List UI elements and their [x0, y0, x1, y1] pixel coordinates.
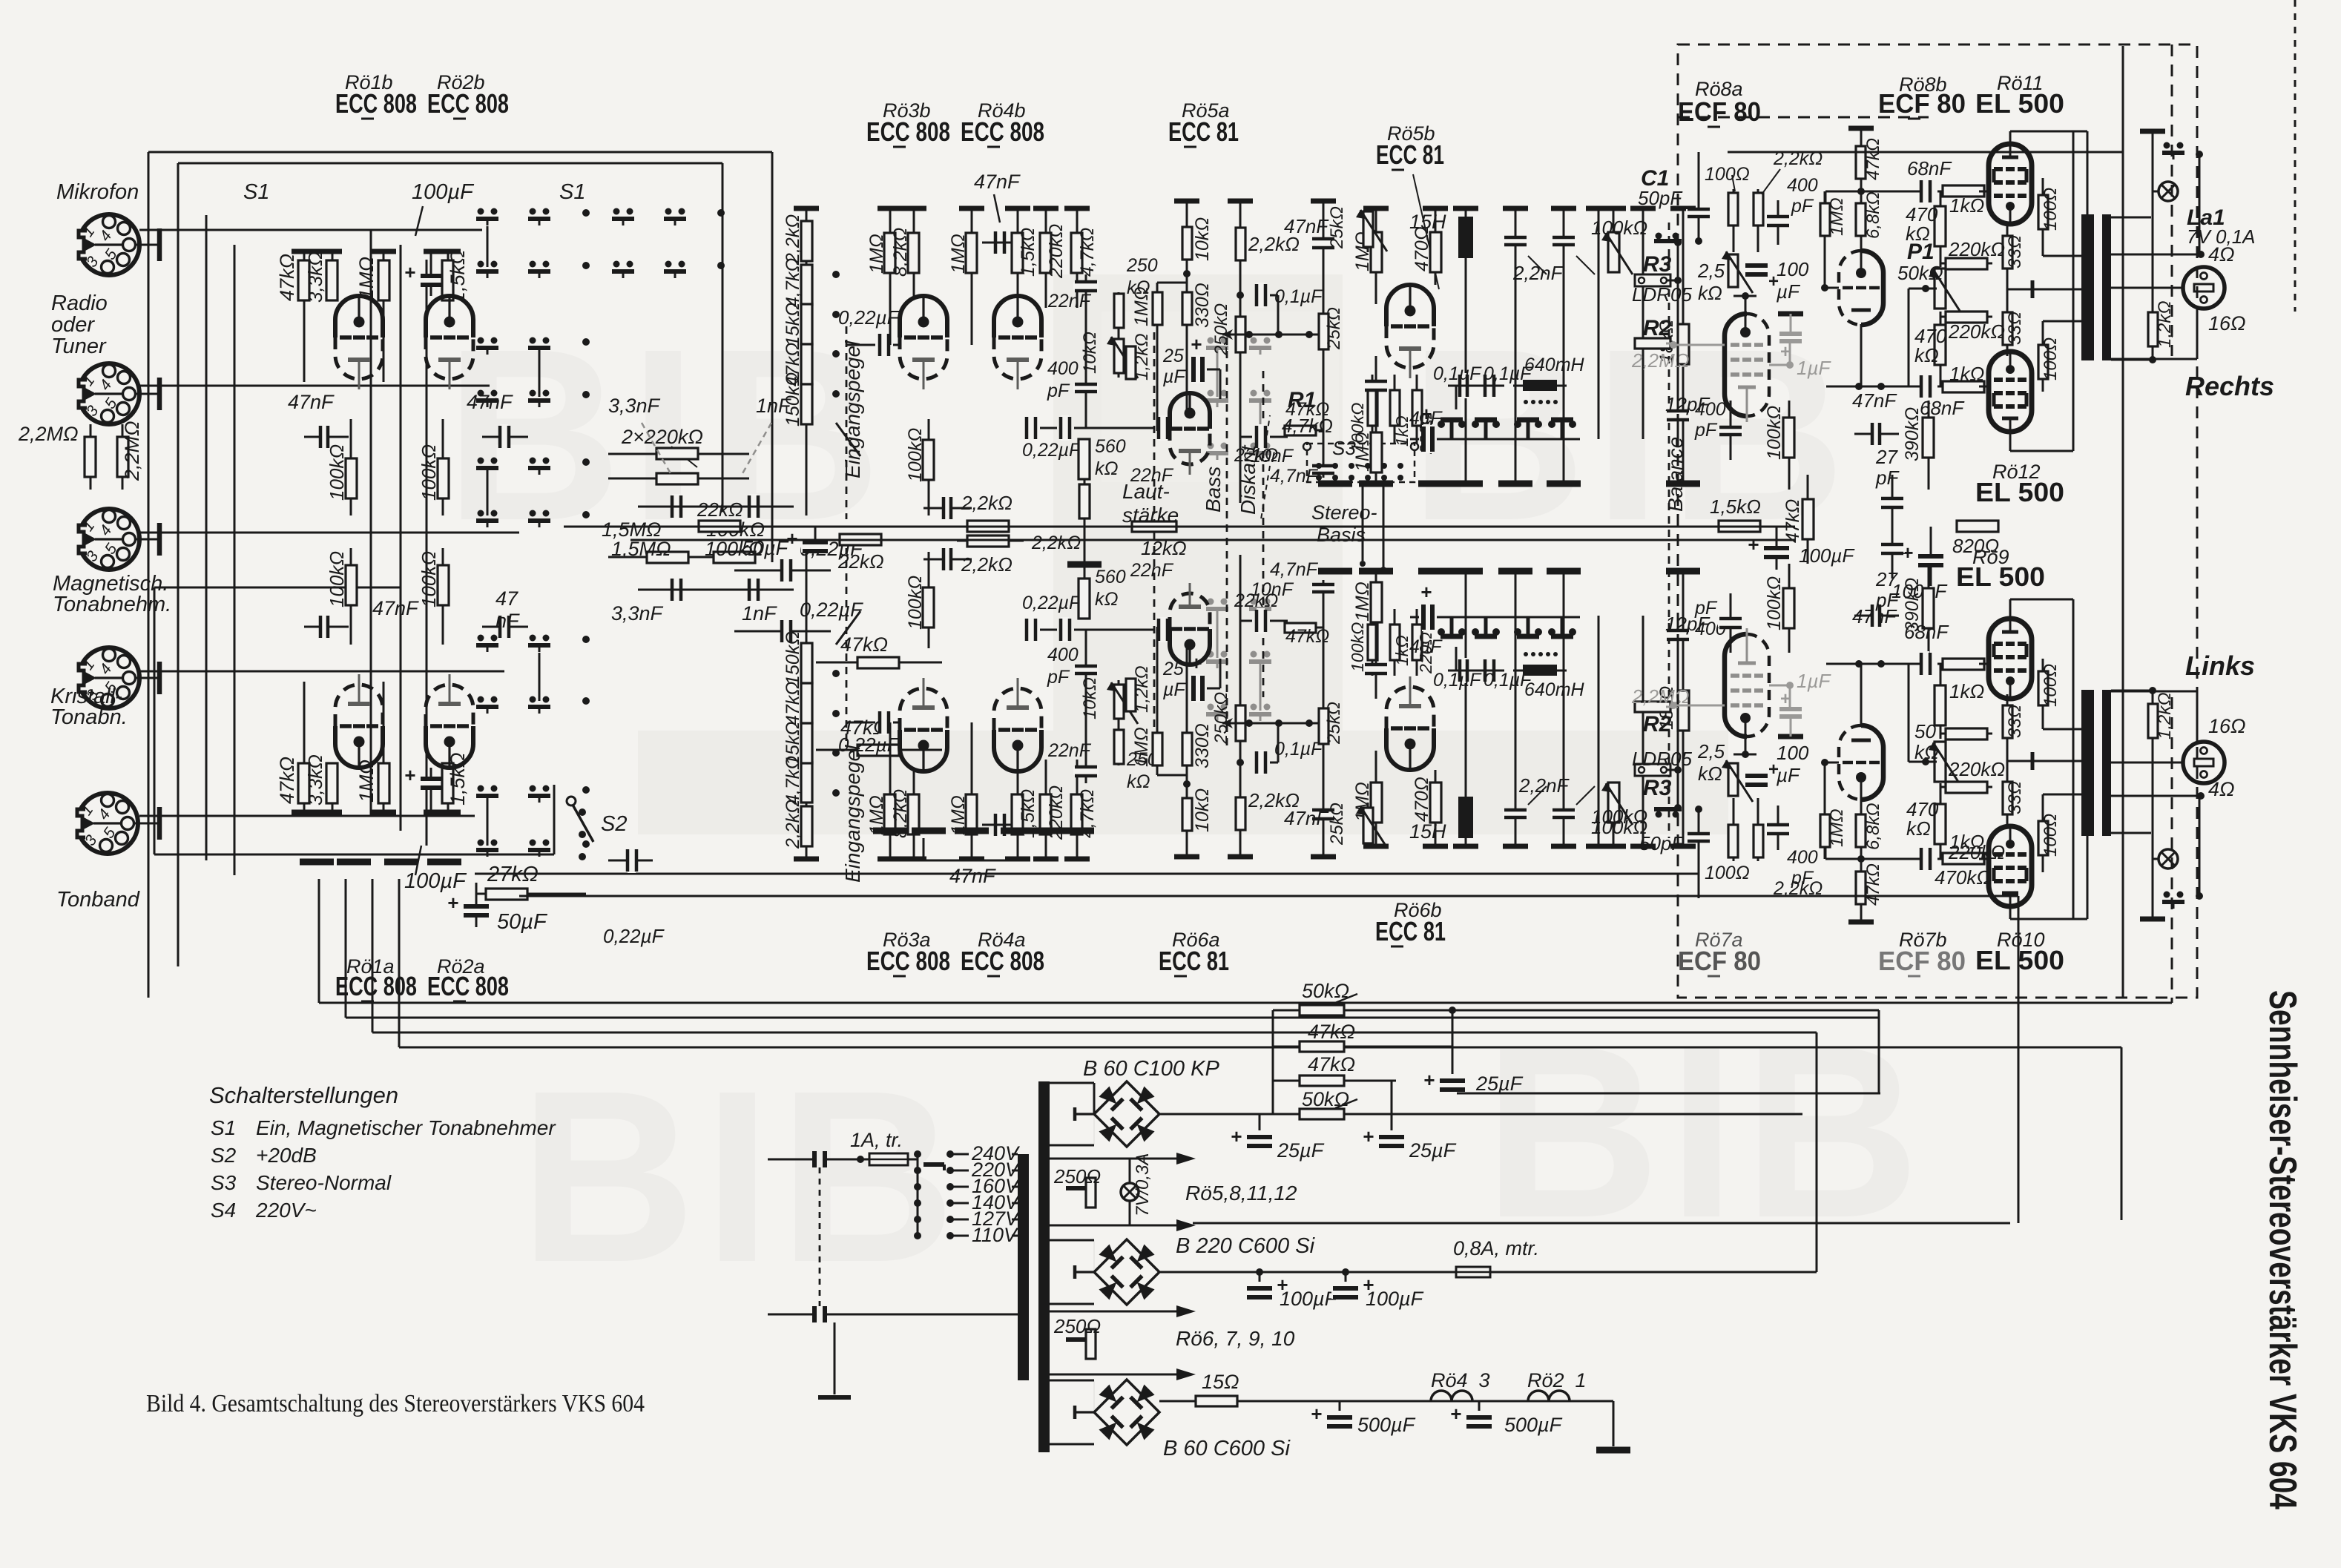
- svg-text:50kΩ: 50kΩ: [1302, 1088, 1349, 1110]
- svg-text:47kΩ: 47kΩ: [1782, 499, 1803, 543]
- svg-text:Sennheiser-Stereoverstärker VK: Sennheiser-Stereoverstärker VKS 604: [2261, 990, 2304, 1509]
- svg-text:560: 560: [1095, 436, 1126, 457]
- svg-text:kΩ: kΩ: [1095, 458, 1119, 479]
- svg-text:15kΩ: 15kΩ: [783, 722, 803, 765]
- svg-text:S2: S2: [601, 812, 627, 836]
- svg-text:400: 400: [1787, 847, 1818, 868]
- svg-text:S2: S2: [211, 1144, 237, 1167]
- svg-text:22nF: 22nF: [1130, 465, 1174, 486]
- svg-text:100kΩ: 100kΩ: [905, 576, 926, 630]
- svg-text:68nF: 68nF: [1904, 621, 1949, 643]
- svg-text:6,8kΩ: 6,8kΩ: [1863, 803, 1883, 850]
- svg-text:1MΩ: 1MΩ: [948, 234, 969, 274]
- svg-text:+: +: [1420, 581, 1432, 603]
- svg-text:25µF: 25µF: [1475, 1073, 1524, 1095]
- svg-text:ECC 808: ECC 808: [866, 946, 950, 976]
- svg-text:50kΩ: 50kΩ: [1897, 262, 1943, 284]
- svg-text:68nF: 68nF: [1920, 397, 1965, 419]
- svg-text:47kΩ: 47kΩ: [1308, 1053, 1355, 1075]
- svg-text:pF: pF: [1791, 868, 1814, 889]
- svg-text:4,7kΩ: 4,7kΩ: [783, 258, 803, 307]
- svg-text:S1: S1: [559, 180, 585, 204]
- svg-text:50: 50: [1914, 720, 1936, 742]
- svg-text:Stereo-Normal: Stereo-Normal: [256, 1171, 392, 1194]
- svg-text:+: +: [1450, 1403, 1461, 1425]
- svg-text:EL 500: EL 500: [1975, 477, 2064, 507]
- svg-text:oder: oder: [51, 313, 95, 337]
- svg-text:+: +: [404, 764, 415, 786]
- svg-text:100kΩ: 100kΩ: [326, 551, 348, 607]
- svg-text:33Ω: 33Ω: [2005, 781, 2025, 814]
- svg-text:150kΩ: 150kΩ: [783, 372, 803, 426]
- svg-text:EL 500: EL 500: [1956, 561, 2045, 592]
- svg-text:0,1µF: 0,1µF: [1433, 670, 1482, 691]
- svg-text:2,2kΩ: 2,2kΩ: [961, 492, 1013, 514]
- svg-text:47nF: 47nF: [467, 391, 513, 413]
- svg-text:33Ω: 33Ω: [2005, 312, 2025, 345]
- svg-text:0,22µF: 0,22µF: [800, 599, 863, 621]
- svg-text:12pF: 12pF: [1665, 393, 1711, 415]
- svg-text:33Ω: 33Ω: [2005, 705, 2025, 738]
- svg-text:6,8kΩ: 6,8kΩ: [1863, 191, 1883, 239]
- svg-text:ECC 808: ECC 808: [866, 116, 950, 147]
- svg-text:kΩ: kΩ: [1914, 344, 1939, 366]
- svg-text:15H: 15H: [1409, 820, 1446, 843]
- svg-text:15kΩ: 15kΩ: [783, 303, 803, 346]
- svg-text:Eingangspegel: Eingangspegel: [841, 745, 864, 883]
- svg-text:1kΩ: 1kΩ: [1949, 363, 1984, 385]
- svg-text:2,5: 2,5: [1697, 740, 1725, 762]
- svg-text:Stereo-: Stereo-: [1311, 501, 1377, 524]
- svg-text:ECC 808: ECC 808: [961, 116, 1044, 147]
- svg-text:22kΩ: 22kΩ: [1234, 590, 1278, 611]
- svg-text:EL 500: EL 500: [1975, 945, 2064, 975]
- svg-text:S1: S1: [243, 180, 269, 204]
- svg-text:22nF: 22nF: [1130, 560, 1174, 581]
- svg-text:100µF: 100µF: [412, 180, 475, 204]
- svg-text:kΩ: kΩ: [1914, 741, 1939, 763]
- svg-text:4,7kΩ: 4,7kΩ: [1077, 228, 1098, 277]
- svg-text:1MΩ: 1MΩ: [1131, 286, 1152, 326]
- svg-text:100kΩ: 100kΩ: [1591, 217, 1647, 239]
- svg-text:P1: P1: [1907, 240, 1935, 264]
- svg-text:+: +: [1191, 333, 1202, 355]
- svg-text:1,5kΩ: 1,5kΩ: [1018, 228, 1038, 277]
- svg-text:ECC 808: ECC 808: [427, 971, 509, 1001]
- svg-text:1MΩ: 1MΩ: [1131, 727, 1152, 767]
- svg-text:R1: R1: [1288, 388, 1316, 412]
- svg-text:Rö5,8,11,12: Rö5,8,11,12: [1185, 1182, 1297, 1205]
- svg-text:3,3kΩ: 3,3kΩ: [304, 251, 326, 303]
- svg-text:4,7nF: 4,7nF: [1270, 466, 1319, 487]
- svg-text:3,3nF: 3,3nF: [611, 602, 664, 625]
- svg-text:250Ω: 250Ω: [1053, 1315, 1101, 1337]
- svg-text:16Ω: 16Ω: [2208, 715, 2246, 737]
- svg-text:Schalterstellungen: Schalterstellungen: [209, 1082, 398, 1108]
- svg-text:+: +: [1311, 1403, 1322, 1425]
- svg-text:220V~: 220V~: [255, 1199, 317, 1222]
- svg-text:ECC 81: ECC 81: [1168, 116, 1239, 147]
- svg-text:250: 250: [1126, 255, 1158, 276]
- svg-text:1MΩ: 1MΩ: [866, 234, 887, 274]
- svg-text:220kΩ: 220kΩ: [1948, 758, 2005, 780]
- svg-text:Rö6, 7, 9, 10: Rö6, 7, 9, 10: [1176, 1327, 1295, 1350]
- svg-text:330Ω: 330Ω: [1192, 283, 1213, 328]
- svg-text:47kΩ: 47kΩ: [840, 633, 888, 656]
- svg-text:2×220kΩ: 2×220kΩ: [621, 426, 703, 448]
- svg-text:1,2kΩ: 1,2kΩ: [2155, 692, 2175, 739]
- svg-text:+: +: [447, 892, 458, 914]
- svg-text:10kΩ: 10kΩ: [1192, 217, 1213, 261]
- svg-text:220kΩ: 220kΩ: [1948, 238, 2005, 260]
- svg-text:2,2MΩ: 2,2MΩ: [1631, 349, 1690, 372]
- svg-text:1MΩ: 1MΩ: [1352, 432, 1373, 472]
- svg-text:Rö4 3: Rö4 3: [1431, 1369, 1490, 1391]
- svg-text:1nF: 1nF: [742, 602, 777, 625]
- svg-text:22nF: 22nF: [1047, 740, 1092, 761]
- svg-text:150kΩ: 150kΩ: [783, 631, 803, 685]
- svg-text:0,1µF: 0,1µF: [1274, 739, 1323, 760]
- svg-text:4µF: 4µF: [1409, 636, 1443, 657]
- svg-text:nF: nF: [495, 610, 520, 632]
- svg-text:Ein, Magnetischer Tonabnehmer: Ein, Magnetischer Tonabnehmer: [256, 1116, 556, 1139]
- svg-text:500µF: 500µF: [1504, 1414, 1563, 1436]
- svg-text:10kΩ: 10kΩ: [1080, 332, 1100, 374]
- svg-text:Tonband: Tonband: [56, 888, 140, 912]
- svg-text:400: 400: [1047, 358, 1079, 379]
- svg-text:27: 27: [1875, 446, 1898, 468]
- svg-text:0,1µF: 0,1µF: [1433, 363, 1482, 384]
- svg-text:25kΩ: 25kΩ: [1327, 206, 1347, 249]
- svg-text:4µF: 4µF: [1409, 408, 1443, 429]
- svg-text:25kΩ: 25kΩ: [1327, 803, 1347, 846]
- svg-text:47kΩ: 47kΩ: [276, 757, 298, 804]
- svg-text:25: 25: [1162, 346, 1184, 366]
- svg-text:ECF 80: ECF 80: [1878, 88, 1966, 119]
- svg-text:400: 400: [1787, 175, 1818, 196]
- svg-text:25µF: 25µF: [1277, 1139, 1325, 1162]
- svg-text:25: 25: [1162, 659, 1184, 679]
- svg-text:kΩ: kΩ: [1906, 817, 1931, 840]
- svg-text:ECC 808: ECC 808: [961, 946, 1044, 976]
- svg-text:220kΩ: 220kΩ: [1948, 320, 2005, 343]
- svg-text:EL 500: EL 500: [1975, 88, 2064, 119]
- svg-text:+: +: [1231, 1125, 1242, 1147]
- svg-text:1,2kΩ: 1,2kΩ: [2155, 300, 2175, 348]
- svg-text:560: 560: [1095, 567, 1126, 587]
- svg-text:1MΩ: 1MΩ: [355, 257, 378, 300]
- svg-text:250Ω: 250Ω: [1053, 1165, 1101, 1187]
- svg-text:0,1µF: 0,1µF: [1274, 286, 1323, 307]
- svg-text:Bild 4. Gesamtschaltung des St: Bild 4. Gesamtschaltung des Stereoverstä…: [146, 1390, 645, 1417]
- svg-text:2,2nF: 2,2nF: [1518, 774, 1570, 797]
- svg-text:Links: Links: [2185, 650, 2255, 681]
- svg-text:1MΩ: 1MΩ: [1827, 808, 1847, 847]
- svg-text:pF: pF: [1875, 589, 1900, 611]
- svg-text:+: +: [1748, 533, 1759, 556]
- svg-text:2,2kΩ: 2,2kΩ: [783, 800, 803, 849]
- svg-text:25kΩ: 25kΩ: [1324, 307, 1344, 350]
- svg-text:pF: pF: [1694, 420, 1718, 441]
- svg-text:µF: µF: [1776, 280, 1801, 303]
- svg-text:1kΩ: 1kΩ: [1949, 680, 1984, 702]
- svg-text:2,2MΩ: 2,2MΩ: [18, 423, 79, 445]
- svg-text:47nF: 47nF: [372, 597, 419, 619]
- svg-text:100Ω: 100Ω: [2041, 814, 2061, 857]
- svg-text:47kΩ: 47kΩ: [276, 254, 298, 301]
- svg-text:400: 400: [1047, 645, 1079, 665]
- svg-text:25kΩ: 25kΩ: [1324, 702, 1344, 745]
- svg-text:15H: 15H: [1409, 211, 1446, 233]
- svg-text:ECF 80: ECF 80: [1878, 946, 1966, 976]
- svg-text:BIB: BIB: [519, 1039, 963, 1313]
- svg-text:ECC 81: ECC 81: [1375, 916, 1446, 946]
- svg-text:25µF: 25µF: [1409, 1139, 1457, 1162]
- svg-text:16Ω: 16Ω: [2208, 312, 2246, 335]
- svg-text:47nF: 47nF: [288, 391, 335, 413]
- svg-text:1µF: 1µF: [1797, 357, 1831, 379]
- svg-text:1,2kΩ: 1,2kΩ: [1132, 333, 1152, 381]
- svg-text:47kΩ: 47kΩ: [1308, 1021, 1355, 1043]
- svg-text:27: 27: [1875, 568, 1898, 590]
- svg-text:12pF: 12pF: [1665, 613, 1711, 635]
- svg-text:3,3kΩ: 3,3kΩ: [304, 754, 326, 806]
- svg-text:4Ω: 4Ω: [2208, 778, 2235, 800]
- svg-text:22nF: 22nF: [1047, 291, 1092, 312]
- svg-text:LDR05: LDR05: [1632, 283, 1692, 306]
- svg-text:ECF 80: ECF 80: [1678, 946, 1761, 976]
- svg-text:22kΩ: 22kΩ: [697, 498, 743, 521]
- svg-text:50kΩ: 50kΩ: [1302, 980, 1349, 1002]
- svg-text:LDR05: LDR05: [1632, 748, 1692, 770]
- svg-text:+: +: [404, 261, 415, 283]
- svg-text:470Ω: 470Ω: [1412, 226, 1432, 271]
- svg-text:220kΩ: 220kΩ: [1948, 841, 2005, 863]
- svg-text:100: 100: [1777, 742, 1809, 764]
- svg-text:+: +: [1363, 1125, 1374, 1147]
- svg-text:33Ω: 33Ω: [2005, 235, 2025, 269]
- svg-text:kΩ: kΩ: [1698, 282, 1722, 304]
- svg-text:1MΩ: 1MΩ: [1827, 197, 1847, 236]
- svg-text:47: 47: [495, 587, 518, 610]
- svg-text:100kΩ: 100kΩ: [418, 551, 440, 607]
- svg-text:330Ω: 330Ω: [1192, 723, 1213, 768]
- svg-text:Eingangspegel: Eingangspegel: [841, 340, 864, 478]
- svg-text:250kΩ: 250kΩ: [1211, 692, 1231, 745]
- svg-text:47kΩ: 47kΩ: [1863, 138, 1883, 180]
- svg-text:kΩ: kΩ: [1095, 589, 1119, 610]
- svg-text:pF: pF: [1047, 381, 1070, 401]
- svg-text:100µF: 100µF: [1366, 1288, 1424, 1310]
- svg-text:8,2kΩ: 8,2kΩ: [890, 228, 911, 277]
- svg-text:100Ω: 100Ω: [2041, 188, 2061, 231]
- svg-text:50pF: 50pF: [1638, 187, 1683, 209]
- svg-text:100Ω: 100Ω: [1705, 863, 1750, 883]
- svg-text:R2: R2: [1643, 712, 1672, 737]
- svg-text:ECC 81: ECC 81: [1376, 139, 1444, 170]
- svg-text:1µF: 1µF: [1797, 670, 1831, 692]
- svg-text:47nF: 47nF: [974, 171, 1021, 193]
- svg-text:3,3nF: 3,3nF: [608, 395, 661, 417]
- svg-text:4,7kΩ: 4,7kΩ: [1282, 415, 1333, 437]
- svg-text:100kΩ: 100kΩ: [1764, 406, 1785, 460]
- svg-text:+: +: [1191, 652, 1202, 674]
- svg-text:47kΩ: 47kΩ: [1285, 626, 1329, 647]
- svg-text:110V: 110V: [972, 1224, 1019, 1246]
- svg-text:Tuner: Tuner: [51, 335, 107, 358]
- svg-text:50µF: 50µF: [497, 910, 548, 934]
- svg-text:4,7nF: 4,7nF: [1270, 559, 1319, 580]
- svg-text:1,5kΩ: 1,5kΩ: [1710, 495, 1761, 518]
- svg-text:Radio: Radio: [51, 291, 108, 315]
- svg-text:kΩ: kΩ: [1127, 771, 1150, 792]
- svg-text:+: +: [1423, 1069, 1435, 1091]
- svg-text:Rö2 1: Rö2 1: [1527, 1369, 1587, 1391]
- svg-text:100kΩ: 100kΩ: [905, 428, 926, 482]
- svg-text:1kΩ: 1kΩ: [1949, 194, 1984, 217]
- svg-text:R2: R2: [1643, 316, 1672, 340]
- svg-text:µF: µF: [1162, 679, 1186, 700]
- svg-text:2,5: 2,5: [1697, 260, 1725, 282]
- svg-text:10kΩ: 10kΩ: [1080, 677, 1100, 719]
- svg-text:0,22µF: 0,22µF: [1022, 593, 1081, 613]
- svg-text:pF: pF: [1791, 196, 1814, 217]
- svg-text:µF: µF: [1162, 366, 1186, 387]
- svg-text:R3: R3: [1643, 252, 1672, 277]
- svg-text:470kΩ: 470kΩ: [1935, 866, 1991, 889]
- svg-text:250kΩ: 250kΩ: [1211, 303, 1231, 356]
- svg-text:10kΩ: 10kΩ: [1192, 788, 1213, 832]
- svg-text:2,2kΩ: 2,2kΩ: [1031, 533, 1081, 553]
- svg-text:47nF: 47nF: [1284, 807, 1329, 829]
- svg-text:R3: R3: [1643, 776, 1672, 800]
- svg-text:ECC 808: ECC 808: [335, 971, 417, 1001]
- svg-text:pF: pF: [1047, 667, 1070, 688]
- svg-text:kΩ: kΩ: [1698, 762, 1722, 785]
- svg-text:15Ω: 15Ω: [1202, 1371, 1239, 1393]
- svg-text:100Ω: 100Ω: [2041, 664, 2061, 707]
- svg-text:ECF 80: ECF 80: [1678, 96, 1761, 127]
- svg-text:470Ω: 470Ω: [1412, 777, 1432, 822]
- svg-text:100kΩ: 100kΩ: [1764, 576, 1785, 630]
- svg-text:+20dB: +20dB: [256, 1144, 317, 1167]
- svg-text:+: +: [786, 527, 797, 550]
- svg-text:100kΩ: 100kΩ: [326, 444, 348, 501]
- svg-text:100Ω: 100Ω: [1705, 164, 1750, 185]
- svg-text:BIB: BIB: [1484, 995, 1927, 1268]
- svg-text:2,2kΩ: 2,2kΩ: [961, 553, 1013, 576]
- svg-text:2,2kΩ: 2,2kΩ: [783, 214, 803, 264]
- svg-text:Bass: Bass: [1202, 467, 1225, 513]
- svg-text:100µF: 100µF: [1280, 1288, 1338, 1310]
- svg-text:B 60 C600 Si: B 60 C600 Si: [1163, 1437, 1291, 1460]
- svg-text:S3: S3: [211, 1171, 237, 1194]
- svg-text:7V/0,3A: 7V/0,3A: [1133, 1153, 1153, 1216]
- svg-text:1A, tr.: 1A, tr.: [850, 1129, 903, 1151]
- svg-text:B 60 C100 KP: B 60 C100 KP: [1083, 1057, 1219, 1081]
- svg-text:640mH: 640mH: [1524, 679, 1585, 700]
- svg-text:68nF: 68nF: [1907, 157, 1952, 179]
- svg-text:ECC 81: ECC 81: [1159, 946, 1229, 976]
- svg-text:Balance: Balance: [1664, 437, 1687, 512]
- svg-text:0,22µF: 0,22µF: [603, 925, 665, 947]
- svg-text:B 220 C600 Si: B 220 C600 Si: [1176, 1234, 1316, 1258]
- svg-text:ECC 808: ECC 808: [335, 88, 417, 119]
- svg-text:1MΩ: 1MΩ: [1352, 582, 1373, 622]
- svg-text:100kΩ: 100kΩ: [418, 444, 440, 501]
- svg-text:220kΩ: 220kΩ: [1046, 224, 1067, 279]
- svg-text:47kΩ: 47kΩ: [1863, 863, 1883, 906]
- svg-text:2,2MΩ: 2,2MΩ: [121, 421, 143, 481]
- svg-text:Rechts: Rechts: [2185, 371, 2274, 401]
- svg-text:500µF: 500µF: [1357, 1414, 1416, 1436]
- svg-text:47nF: 47nF: [1852, 389, 1897, 412]
- svg-text:0,8A, mtr.: 0,8A, mtr.: [1453, 1237, 1539, 1259]
- svg-text:0,22µF: 0,22µF: [1022, 440, 1081, 461]
- svg-text:22kΩ: 22kΩ: [1234, 445, 1278, 466]
- svg-text:4Ω: 4Ω: [2208, 243, 2235, 266]
- svg-text:47nF: 47nF: [949, 865, 996, 887]
- svg-text:100kΩ: 100kΩ: [1348, 622, 1367, 672]
- svg-text:100µF: 100µF: [404, 869, 467, 893]
- svg-text:0,22µF: 0,22µF: [838, 306, 900, 329]
- svg-text:47nF: 47nF: [1284, 215, 1329, 237]
- svg-text:100Ω: 100Ω: [2041, 337, 2061, 381]
- svg-text:640mH: 640mH: [1524, 355, 1585, 375]
- svg-text:Mikrofon: Mikrofon: [56, 180, 139, 204]
- svg-text:S1: S1: [211, 1116, 236, 1139]
- svg-text:1,2kΩ: 1,2kΩ: [1132, 665, 1152, 713]
- svg-text:ECC 808: ECC 808: [427, 88, 509, 119]
- svg-text:100kΩ: 100kΩ: [1591, 806, 1647, 828]
- svg-text:47kΩ: 47kΩ: [783, 682, 803, 725]
- svg-text:pF: pF: [1875, 467, 1900, 489]
- svg-text:22kΩ: 22kΩ: [837, 550, 884, 573]
- svg-text:S4: S4: [211, 1199, 236, 1222]
- svg-text:100: 100: [1777, 258, 1809, 280]
- svg-text:µF: µF: [1776, 764, 1801, 786]
